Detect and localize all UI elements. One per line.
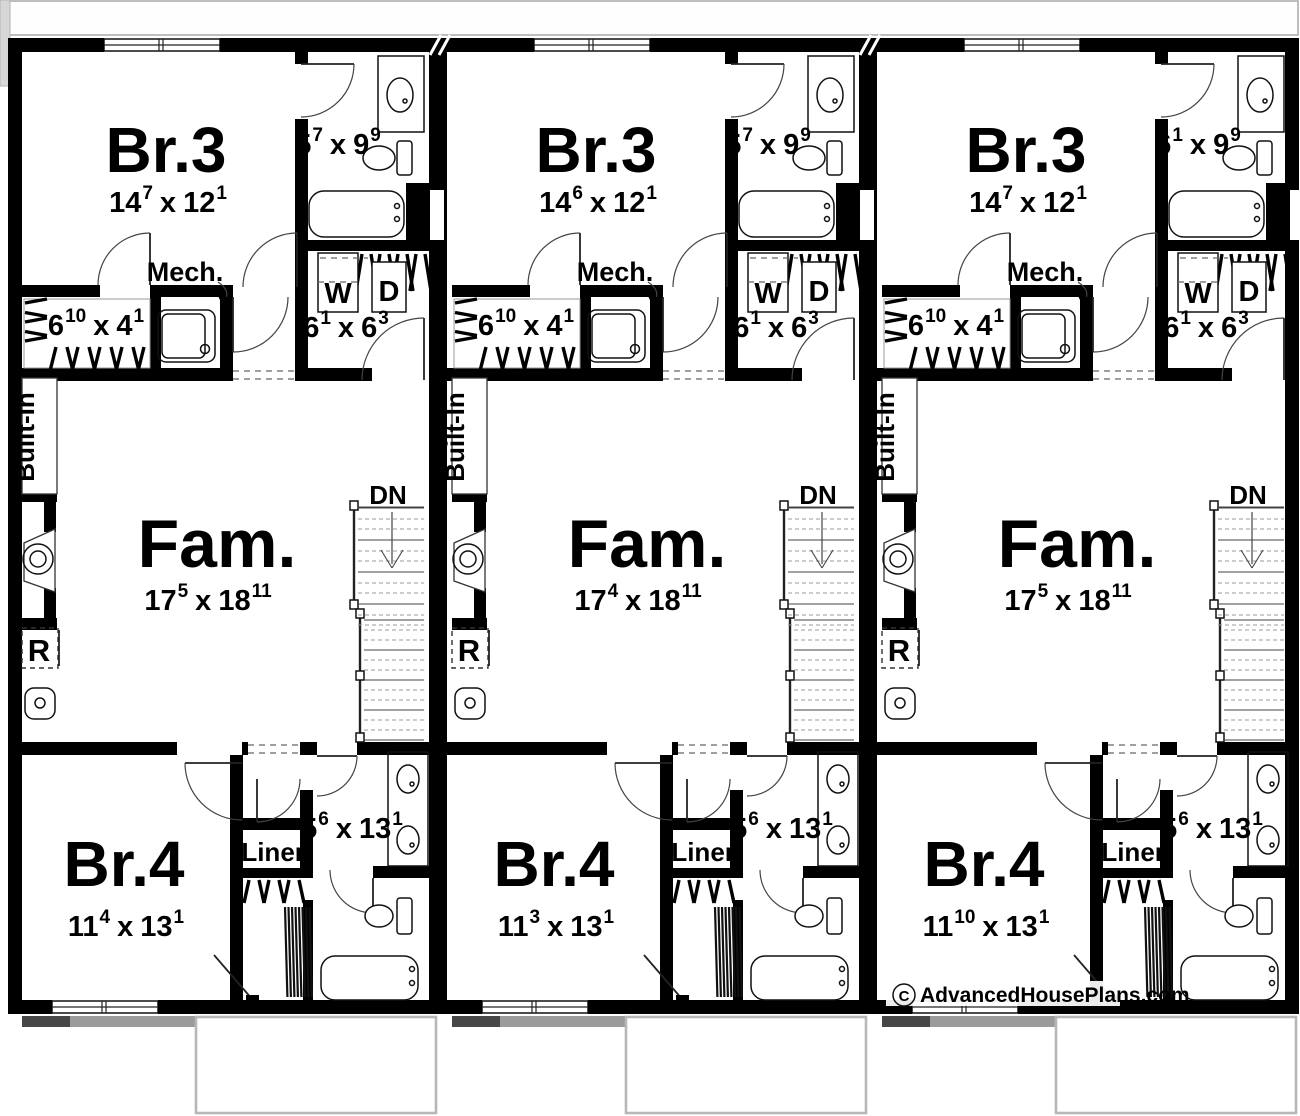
railing-post (1216, 733, 1224, 742)
dim-feet: 18 (648, 585, 680, 617)
railing-post (1210, 600, 1218, 609)
toilet-tank-icon (397, 141, 412, 175)
tub-pillar (406, 183, 432, 241)
exterior-wall-top (8, 38, 104, 52)
dim-feet: 4 (976, 310, 992, 342)
dim-inches-sup: 3 (1238, 308, 1249, 329)
dim-laundry: 61x63 (733, 308, 819, 344)
dim-inches-sup: 1 (392, 809, 403, 830)
dim-times: x (625, 585, 641, 617)
dim-inches-sup: 9 (800, 125, 811, 146)
dim-feet: 17 (144, 585, 176, 617)
wall-segment (1160, 742, 1177, 755)
toilet-icon (365, 905, 393, 927)
dim-inches-sup: 1 (133, 306, 144, 327)
dim-times: x (953, 310, 969, 342)
dim-inches-sup: 1 (1076, 183, 1087, 204)
dim-inches-sup: 1 (320, 308, 331, 329)
wall-segment (1102, 742, 1108, 755)
entry-step-gray (930, 1016, 1056, 1027)
washer-label: W (1184, 278, 1212, 310)
dim-br4: 114x131 (68, 907, 185, 943)
dim-feet: 17 (1004, 585, 1036, 617)
sink-icon (1257, 826, 1279, 854)
dim-feet: 18 (1078, 585, 1110, 617)
dim-inches-sup: 1 (604, 907, 615, 928)
wall-segment (22, 285, 100, 297)
dryer-label: D (1239, 276, 1260, 308)
exterior-wall-top (220, 38, 438, 52)
entry-step-gray (70, 1016, 196, 1027)
dim-inches-sup: 4 (100, 907, 111, 928)
mech-label: Mech. (1007, 257, 1084, 287)
wall-under-tub (725, 240, 868, 251)
dim-times: x (523, 310, 539, 342)
dim-feet: 14 (969, 187, 1001, 219)
wall-segment (242, 742, 248, 755)
dim-feet: 18 (218, 585, 250, 617)
railing-post (1216, 671, 1224, 680)
built-in-label: Built-In (870, 392, 900, 482)
dn-label: DN (799, 480, 837, 510)
wall-segment (452, 285, 530, 297)
dim-inches-sup: 3 (530, 907, 541, 928)
dim-feet: 5 (731, 813, 747, 845)
washer-label: W (324, 278, 352, 310)
sink-icon (397, 826, 419, 854)
dim-feet: 6 (908, 310, 924, 342)
dim-feet: 11 (923, 911, 954, 943)
room-label-br3: Br.3 (966, 114, 1087, 186)
dim-br3: 146x121 (539, 183, 657, 219)
sink-icon (827, 826, 849, 854)
dim-laundry: 61x63 (303, 308, 389, 344)
railing-post (786, 609, 794, 618)
dim-br3: 147x121 (969, 183, 1087, 219)
dryer-label: D (809, 276, 830, 308)
dim-feet: 9 (353, 129, 369, 161)
room-label-fam: Fam. (998, 506, 1157, 582)
dim-times: x (590, 187, 606, 219)
dim-feet: 5 (1161, 813, 1177, 845)
dim-feet: 9 (1213, 129, 1229, 161)
sink-icon (397, 765, 419, 793)
dim-inches-sup: 3 (808, 308, 819, 329)
sink-icon (387, 78, 413, 112)
dim-feet: 12 (1043, 187, 1075, 219)
dim-inches-sup: 10 (495, 306, 516, 327)
dim-feet: 13 (140, 911, 172, 943)
dim-inches-sup: 1 (1039, 907, 1050, 928)
sink-icon (827, 765, 849, 793)
wall-segment (357, 742, 438, 755)
dim-inches-sup: 1 (646, 183, 657, 204)
patio-outline (1056, 1017, 1296, 1113)
wall-segment (676, 995, 689, 1005)
dim-times: x (1055, 585, 1071, 617)
dim-times: x (160, 187, 176, 219)
wall-niche (430, 190, 444, 240)
dim-inches-sup: 4 (608, 581, 619, 602)
exterior-wall-top (868, 38, 964, 52)
wall-segment (882, 285, 960, 297)
dim-inches-sup: 9 (1230, 125, 1241, 146)
wall-under-tub (295, 240, 438, 251)
fridge-label: R (888, 633, 910, 668)
dim-br4: 113x131 (498, 907, 615, 943)
railing-post (786, 671, 794, 680)
dim-inches-sup: 1 (1252, 809, 1263, 830)
railing-post (356, 671, 364, 680)
room-label-br4: Br.4 (64, 828, 185, 900)
dn-label: DN (1229, 480, 1267, 510)
dim-times: x (330, 129, 346, 161)
wall-segment (295, 52, 308, 64)
wall-segment (474, 588, 486, 620)
dim-inches-sup: 11 (252, 581, 273, 602)
dim-inches-sup: 6 (572, 183, 583, 204)
dim-inches-sup: 7 (742, 125, 753, 146)
patio-outline (196, 1017, 436, 1113)
railing-post (786, 733, 794, 742)
dim-feet: 4 (546, 310, 562, 342)
washer-label: W (754, 278, 782, 310)
dim-feet: 4 (116, 310, 132, 342)
dim-inches-sup: 1 (750, 308, 761, 329)
fam-bottom-wall (8, 742, 177, 755)
dim-inches-sup: 1 (216, 183, 227, 204)
wall-segment (474, 502, 486, 532)
toilet-icon (795, 905, 823, 927)
wall-segment (904, 588, 916, 620)
railing-post (356, 609, 364, 618)
room-label-br3: Br.3 (106, 114, 227, 186)
dim-bath-upper: 57x99 (725, 125, 811, 161)
built-in-label: Built-In (10, 392, 40, 482)
dim-times: x (1198, 312, 1214, 344)
railing-post (1216, 609, 1224, 618)
br4-right-wall (660, 755, 673, 1000)
dim-inches-sup: 5 (178, 581, 189, 602)
wall-under-tub (1155, 240, 1298, 251)
dim-laundry: 61x63 (1163, 308, 1249, 344)
dim-feet: 13 (570, 911, 602, 943)
railing-post (780, 501, 788, 510)
exterior-wall-bottom (8, 1000, 52, 1014)
toilet-tank-icon (1257, 898, 1272, 934)
dim-bath-upper: 61x99 (1155, 125, 1241, 161)
exterior-wall-top (650, 38, 868, 52)
linen-bottom-wall (243, 868, 313, 878)
dim-feet: 5 (725, 129, 741, 161)
dim-feet: 12 (613, 187, 645, 219)
dim-times: x (766, 813, 782, 845)
dim-feet: 6 (478, 310, 494, 342)
dim-feet: 17 (574, 585, 606, 617)
exterior-wall-top (438, 38, 534, 52)
dim-inches-sup: 1 (1172, 125, 1183, 146)
toilet-icon (1225, 905, 1253, 927)
exterior-wall-top (1080, 38, 1298, 52)
dim-inches-sup: 1 (563, 306, 574, 327)
dim-feet: 6 (303, 312, 319, 344)
fam-bottom-wall (438, 742, 607, 755)
dim-inches-sup: 7 (1002, 183, 1013, 204)
dim-closet: 610x41 (48, 306, 145, 342)
dim-feet: 13 (1219, 813, 1251, 845)
wall-segment (1155, 52, 1168, 64)
wall-segment (730, 742, 747, 755)
toilet-tank-icon (827, 898, 842, 934)
dim-inches-sup: 11 (1112, 581, 1133, 602)
fam-bottom-wall (868, 742, 1037, 755)
dim-inches-sup: 3 (378, 308, 389, 329)
toilet-tank-icon (397, 898, 412, 934)
floor-plan: Br.3147x12157x99Mech.610x41WD61x63Built-… (0, 0, 1300, 1116)
wall-segment (787, 742, 868, 755)
copyright-symbol: C (899, 988, 910, 1005)
dim-feet: 11 (68, 911, 99, 943)
railing-post (350, 501, 358, 510)
dim-bath-upper: 57x99 (295, 125, 381, 161)
br4-right-wall (230, 755, 243, 1000)
dim-feet: 13 (359, 813, 391, 845)
dim-times: x (1020, 187, 1036, 219)
dim-br4: 1110x131 (923, 907, 1050, 943)
dim-inches-sup: 6 (748, 809, 759, 830)
linen-bottom-wall (1103, 868, 1173, 878)
dim-times: x (760, 129, 776, 161)
dim-closet: 610x41 (908, 306, 1005, 342)
floor-plan-svg: Br.3147x12157x99Mech.610x41WD61x63Built-… (0, 0, 1300, 1116)
upper-section-wall (725, 368, 802, 381)
wall-niche (860, 190, 874, 240)
dim-feet: 6 (1163, 312, 1179, 344)
dim-inches-sup: 10 (65, 306, 86, 327)
fridge-label: R (458, 633, 480, 668)
tub-pillar (836, 183, 862, 241)
entry-step-dark (22, 1016, 70, 1027)
dim-feet: 13 (789, 813, 821, 845)
dim-feet: 5 (295, 129, 311, 161)
tub-pillar (1266, 183, 1292, 241)
upper-section-wall (295, 368, 372, 381)
dim-feet: 6 (48, 310, 64, 342)
wall-segment (725, 52, 738, 64)
dim-feet: 13 (1006, 911, 1038, 943)
dim-times: x (768, 312, 784, 344)
fridge-label: R (28, 633, 50, 668)
room-label-fam: Fam. (568, 506, 727, 582)
vanity-wall (1233, 866, 1298, 878)
dim-inches-sup: 1 (822, 809, 833, 830)
built-in-label: Built-In (440, 392, 470, 482)
toilet-tank-icon (827, 141, 842, 175)
dim-times: x (336, 813, 352, 845)
room-label-br3: Br.3 (536, 114, 657, 186)
railing-post (356, 733, 364, 742)
roof-line-strip (1, 1, 1298, 35)
dim-inches-sup: 1 (174, 907, 185, 928)
upper-section-wall (1155, 368, 1232, 381)
dim-inches-sup: 7 (142, 183, 153, 204)
dim-times: x (982, 911, 998, 943)
dim-feet: 6 (791, 312, 807, 344)
mech-label: Mech. (577, 257, 654, 287)
dim-inches-sup: 1 (1180, 308, 1191, 329)
dim-closet: 610x41 (478, 306, 575, 342)
entry-step-dark (882, 1016, 930, 1027)
dim-times: x (117, 911, 133, 943)
exterior-wall-bottom (158, 1000, 438, 1014)
vanity-wall (373, 866, 438, 878)
vanity-wall (803, 866, 868, 878)
dim-times: x (1196, 813, 1212, 845)
wall-segment (300, 742, 317, 755)
exterior-wall-left (8, 38, 22, 1014)
dim-feet: 12 (183, 187, 215, 219)
room-label-br4: Br.4 (494, 828, 615, 900)
dim-br3: 147x121 (109, 183, 227, 219)
dim-times: x (93, 310, 109, 342)
linen-bottom-wall (673, 868, 743, 878)
sink-icon (817, 78, 843, 112)
railing-post (350, 600, 358, 609)
railing-post (1210, 501, 1218, 510)
patio-outline (626, 1017, 866, 1113)
dim-feet: 5 (301, 813, 317, 845)
dim-feet: 11 (498, 911, 529, 943)
sink-icon (1257, 765, 1279, 793)
entry-step-dark (452, 1016, 500, 1027)
entry-step-gray (500, 1016, 626, 1027)
wall-segment (246, 995, 259, 1005)
dim-feet: 6 (733, 312, 749, 344)
room-label-br4: Br.4 (924, 828, 1045, 900)
wall-segment (44, 588, 56, 620)
dim-feet: 14 (539, 187, 571, 219)
room-label-fam: Fam. (138, 506, 297, 582)
dim-times: x (1190, 129, 1206, 161)
railing-post (780, 600, 788, 609)
wall-segment (904, 502, 916, 532)
wall-niche (1290, 190, 1300, 240)
dim-inches-sup: 6 (1178, 809, 1189, 830)
dim-inches-sup: 1 (993, 306, 1004, 327)
dim-inches-sup: 6 (318, 809, 329, 830)
dim-inches-sup: 10 (954, 907, 975, 928)
mech-label: Mech. (147, 257, 224, 287)
toilet-tank-icon (1257, 141, 1272, 175)
sink-icon (1247, 78, 1273, 112)
dim-inches-sup: 11 (682, 581, 703, 602)
dim-inches-sup: 9 (370, 125, 381, 146)
dim-inches-sup: 7 (312, 125, 323, 146)
wall-segment (672, 742, 678, 755)
dryer-label: D (379, 276, 400, 308)
dim-feet: 9 (783, 129, 799, 161)
wall-segment (1217, 742, 1298, 755)
wall-segment (44, 502, 56, 532)
dim-times: x (195, 585, 211, 617)
dim-feet: 6 (1221, 312, 1237, 344)
dim-feet: 6 (361, 312, 377, 344)
dim-times: x (547, 911, 563, 943)
exterior-wall-bottom (588, 1000, 868, 1014)
dim-feet: 14 (109, 187, 141, 219)
dim-feet: 6 (1155, 129, 1171, 161)
watermark-text: AdvancedHousePlans.com (920, 984, 1190, 1007)
dim-inches-sup: 10 (925, 306, 946, 327)
br4-right-wall (1090, 755, 1103, 1000)
exterior-wall-bottom (438, 1000, 482, 1014)
dim-inches-sup: 5 (1038, 581, 1049, 602)
dim-times: x (338, 312, 354, 344)
dn-label: DN (369, 480, 407, 510)
